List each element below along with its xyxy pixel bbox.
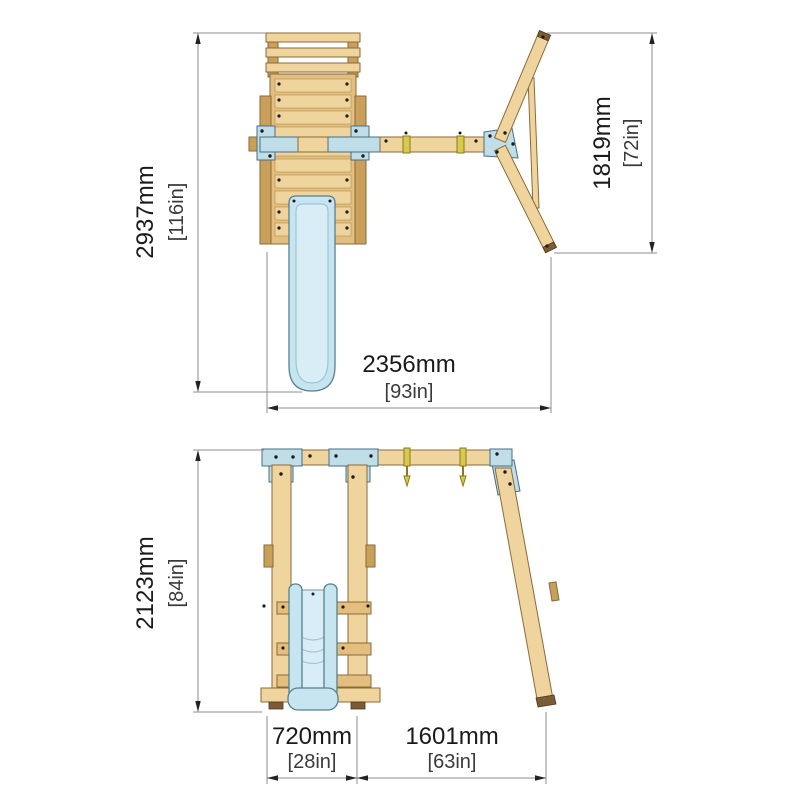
screw	[341, 646, 344, 649]
screw	[345, 210, 348, 213]
slide-chute	[296, 204, 328, 383]
post-tab	[264, 545, 273, 567]
leg-tab	[549, 582, 559, 601]
screw	[262, 604, 265, 607]
drawing-canvas: 2937mm [116in] 1819mm [72in] 2356mm [93i…	[0, 0, 800, 800]
screw	[366, 604, 369, 607]
slide-rail	[289, 584, 302, 698]
dimension-label-in: [28in]	[288, 751, 337, 773]
screw	[474, 139, 477, 142]
aframe-leg	[495, 145, 557, 252]
dimension-label-in: [63in]	[428, 751, 477, 773]
side-rail	[355, 96, 366, 244]
screw	[488, 134, 491, 137]
screw	[369, 454, 372, 457]
tower-post	[272, 465, 291, 699]
dimension-label-in: [93in]	[385, 381, 434, 403]
side-rail	[260, 96, 271, 244]
dimension-overall-height: 2123mm [84in]	[132, 450, 264, 712]
screw	[277, 178, 280, 181]
screw	[308, 454, 311, 457]
screw	[281, 646, 284, 649]
screw	[361, 154, 364, 157]
ladder-plan	[266, 33, 360, 77]
screw	[291, 455, 294, 458]
arrowhead	[195, 381, 200, 392]
swing-hanger-plan	[403, 136, 410, 153]
screw	[511, 142, 514, 145]
screw	[495, 452, 498, 455]
beam-metal-section	[328, 137, 380, 152]
top-view: 2937mm [116in] 1819mm [72in] 2356mm [93i…	[132, 31, 657, 413]
screw	[277, 98, 280, 101]
screw	[334, 454, 337, 457]
screw	[354, 129, 357, 132]
aframe-leg-front	[495, 468, 559, 707]
screw	[279, 472, 282, 475]
beam-wood-section	[298, 137, 328, 152]
deck-plank	[275, 79, 351, 92]
slide-front	[288, 584, 338, 710]
beam-wood-section	[380, 137, 484, 152]
beam-bracket	[490, 449, 512, 466]
swing-hanger-plan	[457, 136, 464, 153]
screw	[277, 226, 280, 229]
beam-metal-section	[260, 137, 298, 152]
screw	[277, 210, 280, 213]
post-tab	[366, 545, 375, 567]
arrowhead	[267, 405, 278, 410]
post-foot	[269, 702, 283, 709]
screw	[545, 244, 548, 247]
swing-beam-front	[262, 449, 520, 495]
screw	[277, 82, 280, 85]
deck-plank	[275, 111, 351, 124]
slide-base	[288, 688, 338, 710]
swing-hanger-strap	[404, 448, 410, 466]
screw	[312, 593, 315, 596]
screw	[268, 154, 271, 157]
slide-rail	[324, 584, 337, 698]
screw	[345, 98, 348, 101]
screw	[384, 139, 387, 142]
dimension-label-in: [116in]	[166, 183, 188, 242]
screw	[274, 455, 277, 458]
arrowhead	[649, 242, 654, 253]
screw	[329, 200, 332, 203]
dimension-label-mm: 1819mm	[589, 96, 616, 189]
aframe-plan	[495, 31, 557, 253]
screw	[541, 35, 544, 38]
dimension-label-mm: 720mm	[272, 723, 352, 750]
dimension-label-mm: 2123mm	[132, 536, 159, 629]
screw	[277, 114, 280, 117]
screw	[345, 178, 348, 181]
arrowhead	[357, 775, 368, 780]
swing-hook-icon	[460, 476, 466, 486]
screw	[503, 131, 506, 134]
swing-hanger-strap	[460, 448, 466, 466]
tower-post	[348, 465, 367, 699]
screw	[341, 605, 344, 608]
screw	[345, 82, 348, 85]
arrowhead	[535, 775, 546, 780]
screw	[459, 132, 462, 135]
arrowhead	[195, 450, 200, 461]
screw	[345, 114, 348, 117]
dimension-label-mm: 2937mm	[132, 165, 159, 258]
deck-plank	[275, 175, 351, 188]
arrowhead	[195, 33, 200, 44]
ladder-rung	[266, 63, 360, 72]
screw	[293, 200, 296, 203]
screw	[405, 132, 408, 135]
aframe-crossbar	[528, 78, 539, 208]
screw	[508, 482, 511, 485]
swing-hook-icon	[404, 476, 410, 486]
arrowhead	[195, 701, 200, 712]
arrowhead	[540, 405, 551, 410]
screw	[495, 150, 498, 153]
dimension-label-in: [84in]	[166, 559, 188, 608]
deck-plank	[275, 159, 351, 172]
post-foot	[351, 702, 365, 709]
aframe-leg	[495, 31, 551, 143]
beam-bracket	[262, 449, 302, 466]
screw	[503, 470, 506, 473]
slide-plan	[289, 196, 335, 391]
screw	[351, 475, 354, 478]
dimension-label-mm: 1601mm	[405, 723, 498, 750]
arrowhead	[649, 33, 654, 44]
front-view: 2123mm [84in] 720mm [28in] 1601mm [63in]	[132, 448, 559, 784]
arrowhead	[267, 775, 278, 780]
aframe-leg	[495, 468, 553, 699]
dimension-aframe-spread: 1819mm [72in]	[547, 33, 657, 253]
dimension-label-mm: 2356mm	[362, 351, 455, 378]
ladder-rung	[266, 33, 360, 42]
dimension-label-in: [72in]	[621, 119, 643, 168]
screw	[345, 226, 348, 229]
ladder-rung	[266, 48, 360, 57]
deck-plank	[275, 95, 351, 108]
arrowhead	[346, 775, 357, 780]
screw	[281, 605, 284, 608]
playset-dimension-drawing: 2937mm [116in] 1819mm [72in] 2356mm [93i…	[0, 0, 800, 800]
screw	[260, 129, 263, 132]
dimension-bottom-widths: 720mm [28in] 1601mm [63in]	[267, 712, 546, 784]
